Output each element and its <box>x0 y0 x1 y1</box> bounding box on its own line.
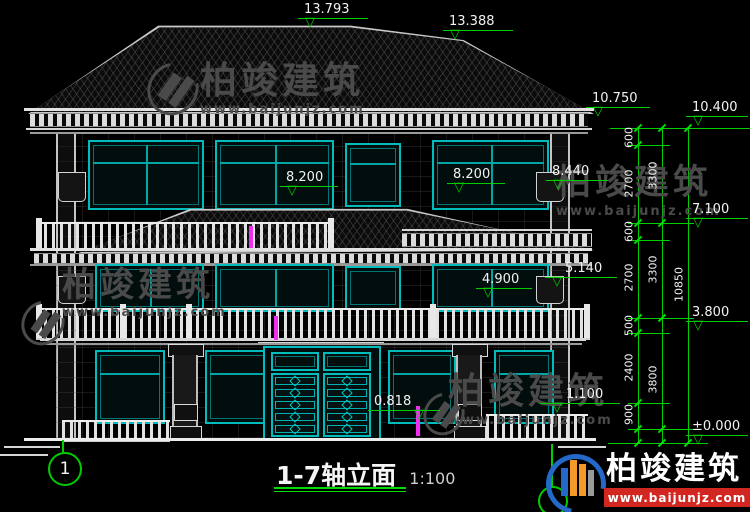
railing-post <box>430 304 436 338</box>
level-triangle-icon: ▽ <box>287 185 297 197</box>
floor3-left-corbel <box>58 172 86 202</box>
level-marker-eave-low: 10.400▽ <box>686 116 748 117</box>
level-value: 0.818 <box>374 394 411 409</box>
dim-label: 2400 <box>623 346 636 390</box>
level-marker-ground: ±0.000▽ <box>686 435 748 436</box>
watermark-url: www.baijunjz.com <box>200 102 365 117</box>
level-triangle-icon: ▽ <box>414 409 424 421</box>
level-marker-ridge-secondary: 13.388▽ <box>443 30 513 31</box>
dim-label: 3800 <box>647 358 660 402</box>
drawing-scale: 1:100 <box>409 469 455 488</box>
magenta-marker <box>249 226 253 248</box>
dim-label: 3300 <box>647 248 660 292</box>
level-triangle-icon: ▽ <box>454 182 464 194</box>
floor2-slab-line-2 <box>44 343 582 345</box>
watermark-left: 柏竣建筑 www.baijunjz.com <box>62 268 227 320</box>
level-triangle-icon: ▽ <box>552 402 562 414</box>
logo-brand-text: 柏竣建筑 <box>606 454 742 485</box>
level-triangle-icon: ▽ <box>693 217 703 229</box>
level-triangle-icon: ▽ <box>483 287 493 299</box>
watermark-brand: 柏竣建筑 <box>200 62 365 99</box>
level-marker-eave-high: 10.750▽ <box>586 107 650 108</box>
dim-label: 3300 <box>647 154 660 198</box>
level-marker-mid-roof-right: 8.440▽ <box>546 180 608 181</box>
mid-eave-dentils <box>34 253 588 264</box>
level-marker-f2-left: 4.900▽ <box>476 288 532 289</box>
railing-post <box>328 218 334 248</box>
railing-post <box>584 304 590 338</box>
floor3-balcony-railing <box>36 222 334 250</box>
level-marker-f2-slab: 3.800▽ <box>686 321 748 322</box>
ground-line <box>24 438 596 441</box>
title-underline-1 <box>274 487 406 489</box>
dim-label: 600 <box>623 116 636 160</box>
axis-line-left <box>62 440 64 452</box>
watermark-brand: 柏竣建筑 <box>62 268 227 302</box>
level-triangle-icon: ▽ <box>693 434 703 446</box>
level-marker-f3-right: 8.200▽ <box>447 183 505 184</box>
watermark-url: www.baijunjz.com <box>448 413 613 428</box>
dim-label: 2700 <box>623 256 636 300</box>
logo-building-bar <box>579 464 586 496</box>
logo-building-bar <box>588 470 594 496</box>
floor2-slab-line-1 <box>40 338 586 341</box>
level-marker-ridge-main: 13.793▽ <box>298 18 368 19</box>
left-column-corbel <box>174 404 198 421</box>
floor3-window-3 <box>345 143 401 207</box>
door-surround <box>258 342 384 343</box>
cad-elevation-canvas: 13.793▽ 13.388▽ 10.750▽ 10.400▽ 8.440▽ 8… <box>0 0 750 512</box>
door-leaf-right <box>323 373 371 437</box>
dim-label: 600 <box>623 210 636 254</box>
dim-label: 900 <box>623 393 636 437</box>
brand-logo: 柏竣建筑 www.baijunjz.com <box>544 446 750 512</box>
axis-bubble-1: 1 <box>48 452 82 486</box>
level-triangle-icon: ▽ <box>553 179 563 191</box>
level-marker-f2-right: 5.140▽ <box>545 277 617 278</box>
logo-building-bar <box>561 468 568 496</box>
level-triangle-icon: ▽ <box>450 29 460 41</box>
right-wing-dentil-band <box>402 233 592 247</box>
level-value: 5.140 <box>565 261 602 276</box>
floor3-window-1 <box>88 140 204 210</box>
logo-building-bar <box>570 460 577 496</box>
level-triangle-icon: ▽ <box>593 106 603 118</box>
drawing-title: 1-7轴立面 <box>276 461 396 490</box>
level-marker-porch-left: 0.818▽ <box>368 410 440 411</box>
floor1-window-1 <box>95 350 165 424</box>
level-value: 1.100 <box>566 387 603 402</box>
right-wing-eave-line <box>402 229 592 231</box>
door-transom-right <box>323 352 371 371</box>
mid-eave-fascia <box>30 248 592 251</box>
left-step-line-1 <box>4 446 60 448</box>
level-triangle-icon: ▽ <box>552 276 562 288</box>
level-triangle-icon: ▽ <box>305 17 315 29</box>
level-marker-f3-left: 8.200▽ <box>280 186 338 187</box>
entrance-door <box>263 346 381 440</box>
left-step-line-2 <box>0 454 48 456</box>
door-leaf-left <box>271 373 319 437</box>
watermark-url: www.baijunjz.com <box>62 305 227 320</box>
title-underline-2 <box>274 491 406 492</box>
magenta-marker <box>274 316 278 340</box>
level-marker-porch-right: 1.100▽ <box>540 403 620 404</box>
axis-number: 1 <box>60 459 71 479</box>
door-transom-left <box>271 352 319 371</box>
watermark-top: 柏竣建筑 www.baijunjz.com <box>200 62 365 117</box>
railing-post <box>36 218 42 248</box>
level-marker-mid-roof-eave: 7.100▽ <box>686 218 748 219</box>
level-triangle-icon: ▽ <box>693 320 703 332</box>
logo-url-banner: www.baijunjz.com <box>604 488 750 507</box>
floor2-window-3 <box>345 266 401 310</box>
dim-label: 2700 <box>623 162 636 206</box>
floor3-window-4 <box>432 140 549 210</box>
dim-label: 500 <box>623 304 636 348</box>
floor2-window-2 <box>215 264 334 312</box>
eave-lower-line-1 <box>26 128 592 130</box>
level-triangle-icon: ▽ <box>693 115 703 127</box>
dim-label-overall: 10850 <box>673 263 686 307</box>
